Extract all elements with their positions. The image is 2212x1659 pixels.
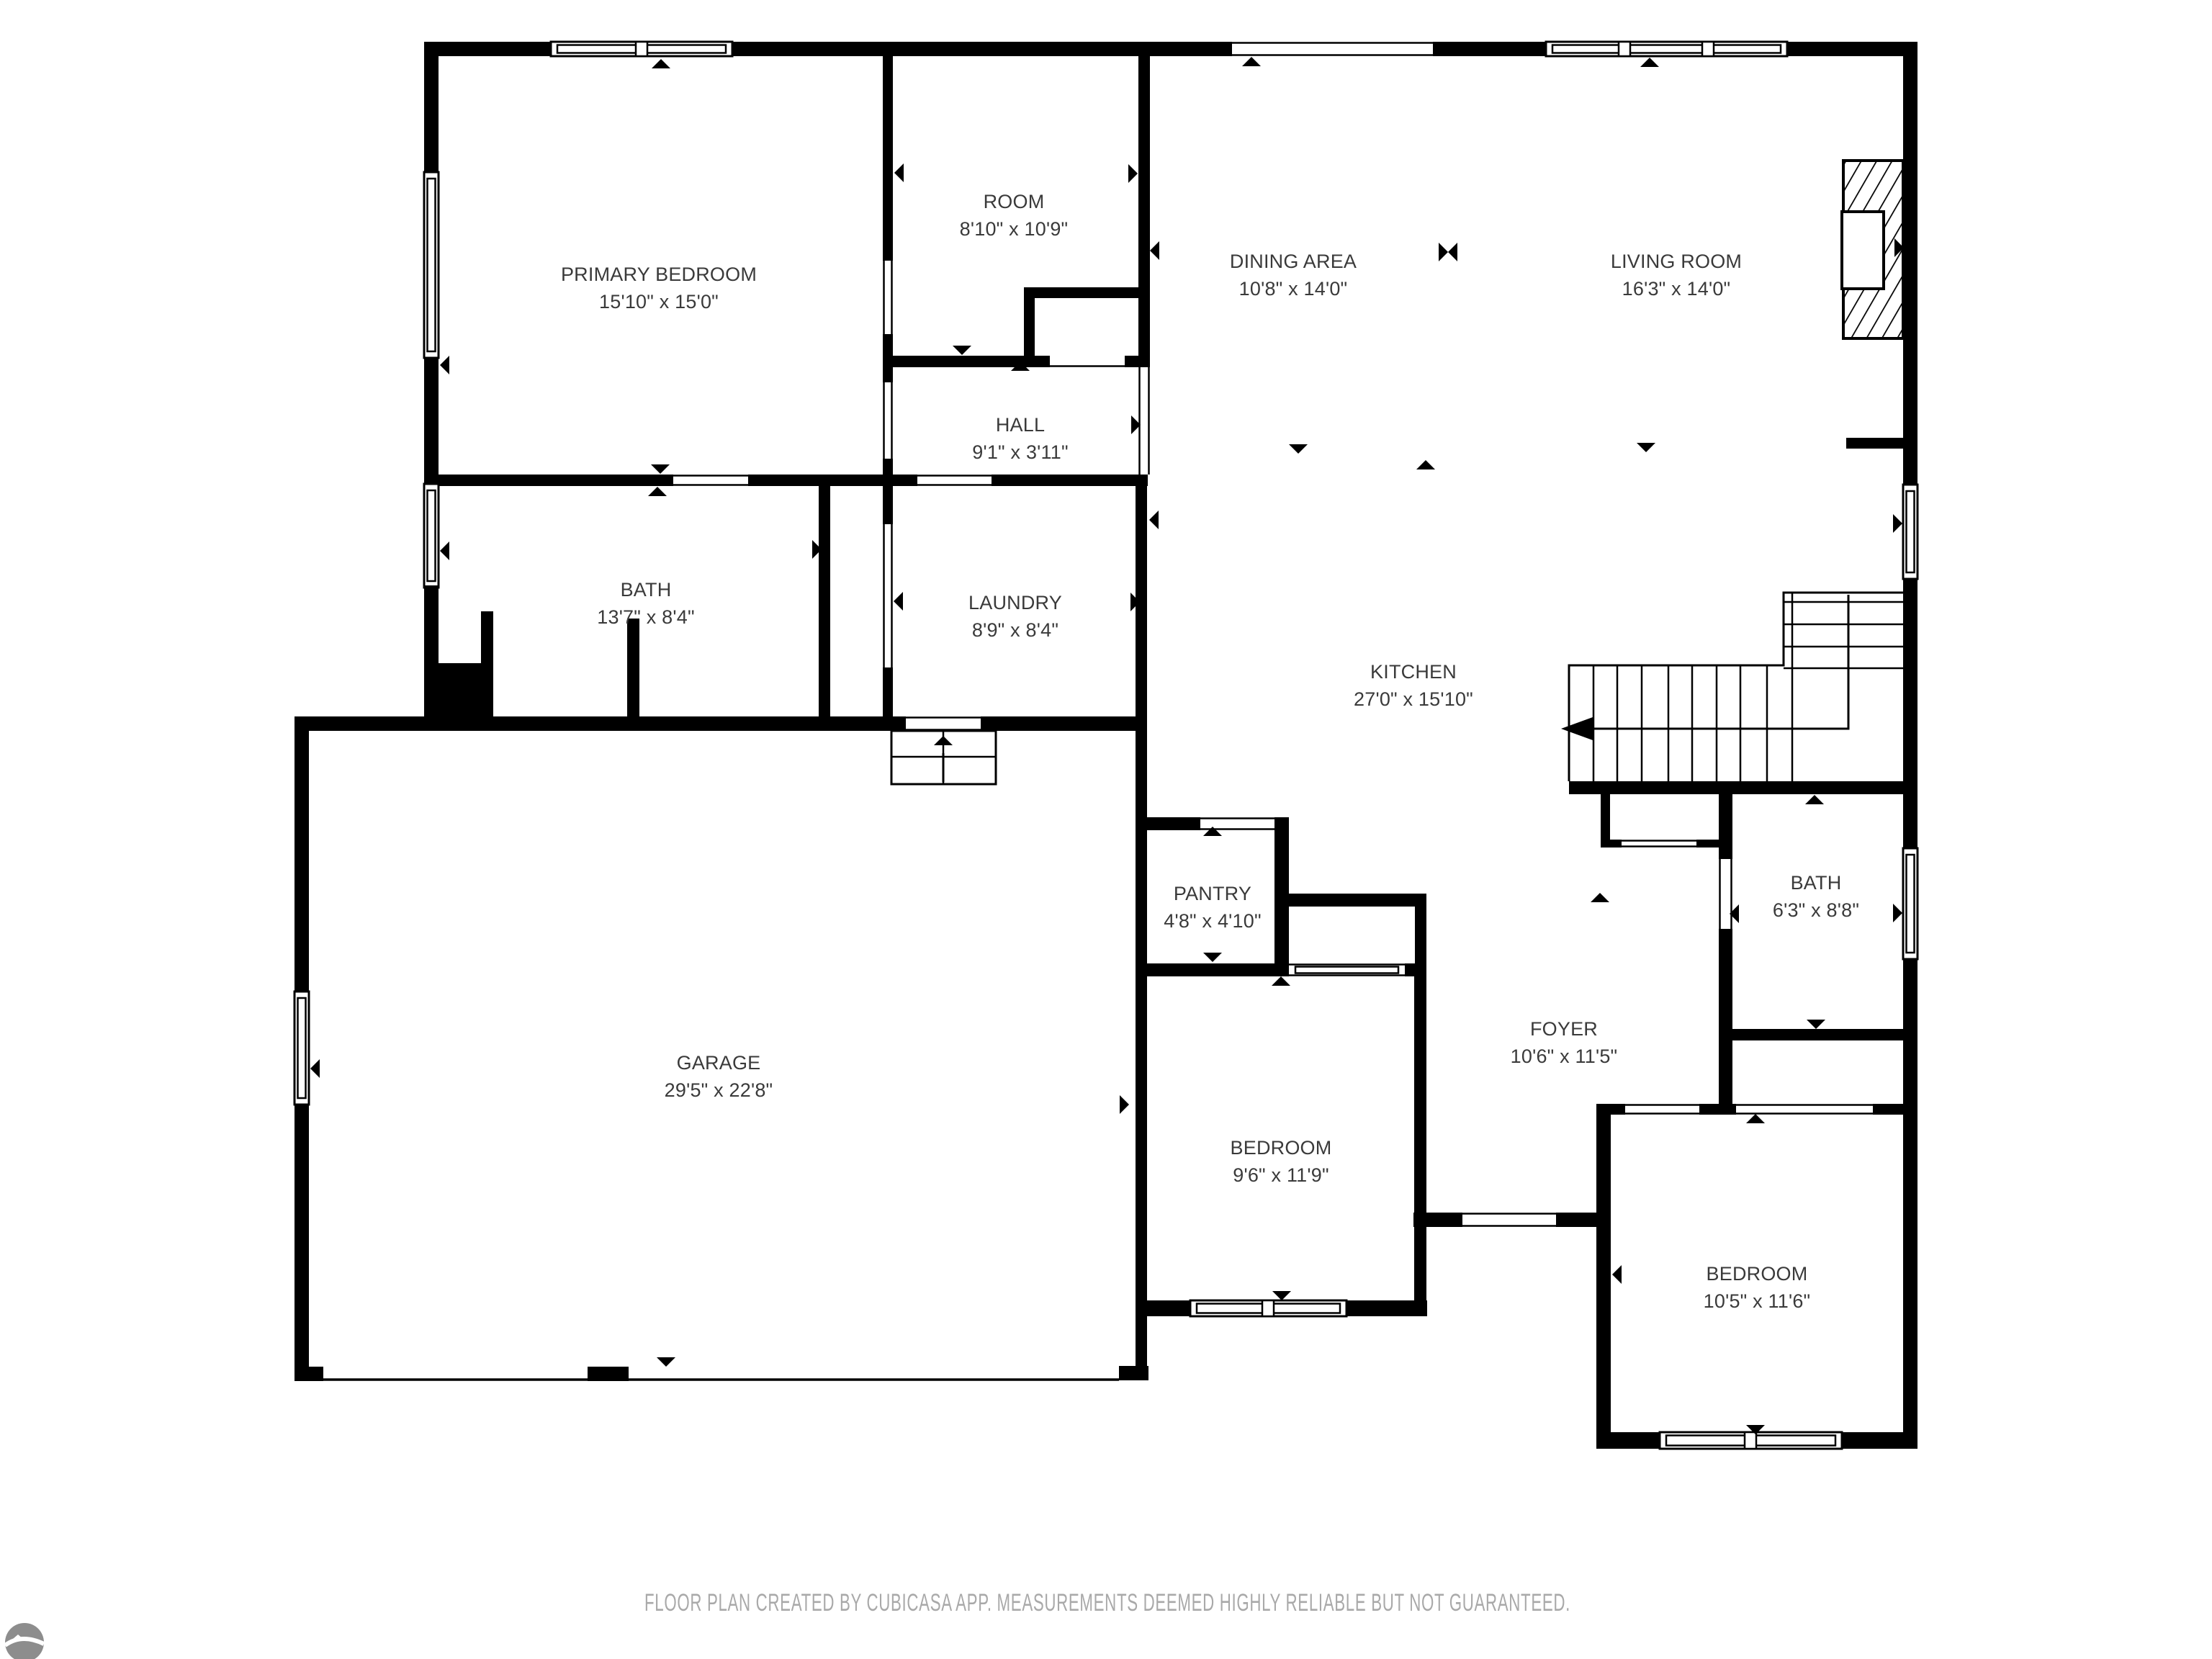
svg-text:15'10" x 15'0": 15'10" x 15'0" — [599, 291, 719, 313]
svg-text:9'1" x 3'11": 9'1" x 3'11" — [972, 441, 1068, 463]
svg-text:GARAGE: GARAGE — [677, 1052, 761, 1074]
svg-text:27'0" x 15'10": 27'0" x 15'10" — [1354, 688, 1473, 710]
svg-text:10'5" x 11'6": 10'5" x 11'6" — [1704, 1290, 1811, 1312]
svg-text:16'3" x 14'0": 16'3" x 14'0" — [1622, 278, 1731, 300]
svg-text:4'8" x 4'10": 4'8" x 4'10" — [1164, 910, 1261, 932]
svg-text:LIVING ROOM: LIVING ROOM — [1611, 251, 1742, 272]
svg-text:ROOM: ROOM — [984, 191, 1045, 212]
svg-text:BATH: BATH — [621, 579, 672, 601]
svg-text:10'8" x 14'0": 10'8" x 14'0" — [1239, 278, 1348, 300]
svg-text:9'6" x 11'9": 9'6" x 11'9" — [1233, 1164, 1328, 1186]
svg-text:BEDROOM: BEDROOM — [1707, 1263, 1808, 1285]
svg-text:DINING AREA: DINING AREA — [1230, 251, 1357, 272]
svg-text:BEDROOM: BEDROOM — [1231, 1137, 1332, 1159]
svg-text:10'6" x 11'5": 10'6" x 11'5" — [1511, 1046, 1618, 1067]
svg-text:PRIMARY BEDROOM: PRIMARY BEDROOM — [561, 264, 757, 285]
svg-text:6'3" x 8'8": 6'3" x 8'8" — [1773, 899, 1859, 921]
svg-text:29'5" x 22'8": 29'5" x 22'8" — [665, 1079, 773, 1101]
svg-text:BATH: BATH — [1791, 872, 1842, 894]
svg-text:8'9" x 8'4": 8'9" x 8'4" — [972, 619, 1058, 641]
svg-text:FOYER: FOYER — [1530, 1018, 1598, 1040]
svg-text:FLOOR PLAN CREATED BY CUBICASA: FLOOR PLAN CREATED BY CUBICASA APP. MEAS… — [644, 1589, 1570, 1617]
svg-text:13'7" x 8'4": 13'7" x 8'4" — [597, 606, 694, 628]
svg-text:KITCHEN: KITCHEN — [1370, 661, 1457, 683]
svg-text:HALL: HALL — [996, 414, 1045, 436]
svg-text:LAUNDRY: LAUNDRY — [968, 592, 1062, 613]
svg-text:8'10" x 10'9": 8'10" x 10'9" — [960, 218, 1069, 240]
svg-text:PANTRY: PANTRY — [1174, 883, 1251, 904]
